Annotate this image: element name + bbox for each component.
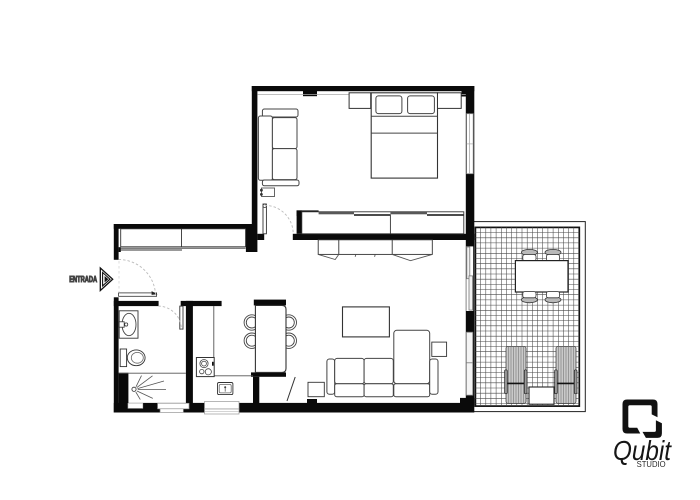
svg-text:STUDIO: STUDIO — [637, 460, 666, 469]
svg-text:ENTRADA: ENTRADA — [69, 275, 97, 284]
